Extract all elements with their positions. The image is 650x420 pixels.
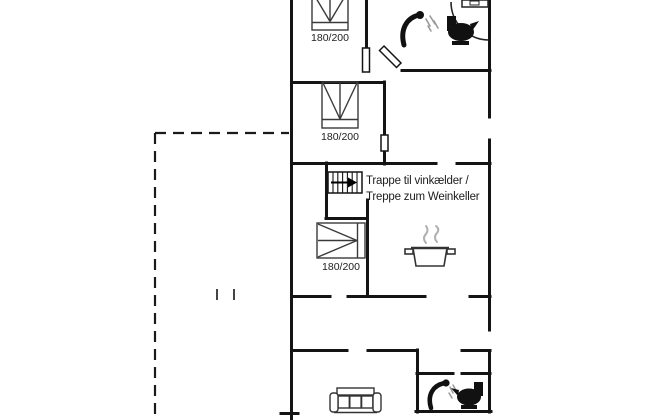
bed-size-label: 180/200	[311, 32, 349, 44]
shower-icon	[430, 379, 457, 408]
exterior-wall	[281, 0, 491, 420]
bed-size-label: 180/200	[322, 261, 360, 273]
double-bed-icon-middle	[322, 82, 358, 128]
sink-icon	[462, 0, 488, 7]
door-leaf	[381, 135, 388, 151]
double-bed-icon-top	[312, 0, 348, 30]
floor-plan: 180/200 180/200 180/200 Trappe til vinkæ…	[0, 0, 650, 420]
shower-icon	[403, 11, 438, 45]
staircase-icon	[328, 172, 362, 193]
staircase-note-line2: Treppe zum Weinkeller	[366, 191, 480, 203]
floor-plan-drawing: 180/200 180/200 180/200 Trappe til vinkæ…	[0, 0, 650, 420]
walls	[281, 0, 491, 420]
cooking-pot-icon	[405, 226, 455, 266]
door-leaf	[363, 48, 370, 72]
doors	[363, 2, 490, 151]
toilet-icon	[447, 16, 479, 45]
bed-size-label: 180/200	[321, 131, 359, 143]
sofa-icon	[330, 388, 381, 413]
toilet-icon	[451, 382, 483, 409]
steam-lines	[424, 226, 438, 243]
double-bed-icon-lower	[317, 223, 365, 258]
staircase-note-line1: Trappe til vinkælder /	[366, 175, 470, 187]
terrace-step-marks	[217, 289, 234, 300]
door-leaf-diagonal	[380, 46, 402, 68]
terrace-outline	[155, 133, 289, 420]
